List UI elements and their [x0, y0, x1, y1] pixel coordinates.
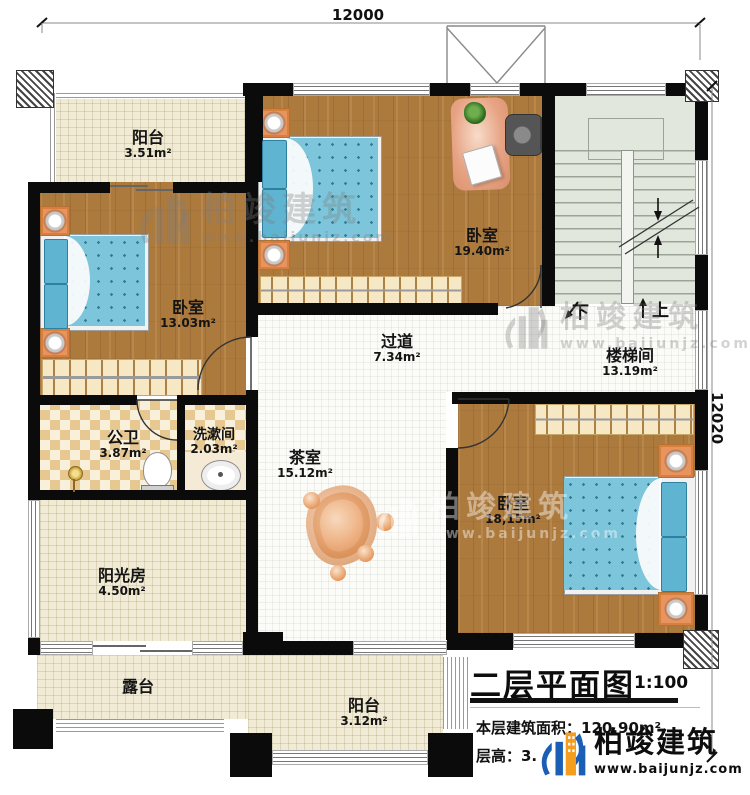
brand-website: www.baijunjz.com [594, 762, 743, 777]
hatched-column [685, 70, 719, 102]
room-label-bedroom-left: 卧室 13.03m² [143, 300, 233, 329]
window [192, 641, 243, 655]
plant [464, 102, 486, 124]
brand-logo [534, 724, 590, 786]
window [586, 83, 666, 96]
stair-up-label: 上 [652, 296, 669, 321]
dimension-top: 12000 [318, 6, 398, 24]
closet-bedroom-left [42, 359, 202, 396]
balcony-railing [52, 93, 245, 99]
window [695, 160, 708, 255]
rock-small [303, 492, 320, 509]
rock-small [357, 545, 374, 562]
room-label-balcony-bottom: 阳台 3.12m² [319, 698, 409, 727]
floor-height-text: 层高：3. [476, 745, 537, 766]
window [28, 500, 40, 638]
window [40, 641, 93, 655]
nightstand [258, 240, 290, 270]
wall-column [243, 632, 283, 655]
office-chair [505, 114, 543, 156]
plan-scale: 1:100 [634, 673, 688, 693]
title-underline [470, 698, 678, 703]
window [272, 750, 428, 765]
wall-column [428, 733, 473, 777]
bed-pillow [661, 482, 687, 537]
wall-segment [28, 182, 40, 498]
wall-segment [452, 392, 708, 404]
stair-down-label: 下 [572, 298, 589, 323]
hatched-column [683, 630, 719, 669]
wall-segment [243, 83, 293, 96]
window [293, 83, 430, 96]
wall-segment [177, 395, 248, 405]
wall-segment [246, 498, 258, 634]
room-label-tearoom: 茶室 15.12m² [260, 450, 350, 479]
wall-segment [28, 182, 110, 193]
window [695, 470, 708, 595]
bed-pillow [44, 284, 68, 329]
wall-segment [173, 182, 248, 193]
bed-pillow [44, 239, 68, 284]
room-label-bedroom-br: 卧室 18,15m² [468, 496, 558, 525]
wall-segment [520, 83, 586, 96]
title-divider [470, 707, 700, 708]
wall-segment [430, 83, 470, 96]
balcony-railing [443, 657, 469, 729]
wall-segment [28, 638, 40, 655]
sink-faucet [218, 472, 223, 477]
wall-column [13, 709, 53, 749]
wall-segment [542, 96, 555, 306]
wall-column [230, 733, 272, 777]
bed-pillow [661, 537, 687, 592]
nightstand [40, 328, 70, 358]
stair-handrail [621, 150, 634, 304]
wall-segment [695, 96, 708, 160]
room-label-bedroom-top: 卧室 19.40m² [437, 228, 527, 257]
room-label-balcony-top: 阳台 3.51m² [103, 130, 193, 159]
wall-segment [246, 182, 258, 337]
room-label-corridor: 过道 7.34m² [352, 334, 442, 363]
floor-plan-canvas: 12000 12020 阳台 3.51m² 卧室 19.40m² 楼梯间 13.… [0, 0, 750, 795]
dimension-right: 12020 [708, 392, 726, 442]
wall-segment [28, 395, 137, 405]
wall-segment [446, 448, 458, 640]
room-label-washroom: 洗漱间 2.03m² [176, 428, 252, 455]
room-label-terrace: 露台 [108, 679, 168, 696]
room-label-stairwell: 楼梯间 13.19m² [584, 348, 676, 377]
wall-segment [245, 96, 263, 182]
hatched-column [16, 70, 54, 108]
closet-bedroom-br [535, 404, 694, 435]
room-label-sunroom: 阳光房 4.50m² [77, 568, 167, 597]
wall-segment [447, 633, 513, 650]
window [513, 633, 635, 648]
window [470, 83, 520, 96]
bed-pillow [262, 189, 287, 238]
brand-logo-icon [534, 724, 590, 782]
room-label-bathroom: 公卫 3.87m² [80, 430, 166, 459]
nightstand [40, 206, 70, 236]
window [353, 641, 447, 655]
nightstand [658, 444, 694, 478]
rock-small [376, 513, 394, 531]
floor-drain [68, 466, 83, 481]
nightstand [658, 592, 694, 626]
bed-pillow [262, 140, 287, 189]
wall-segment [28, 490, 258, 500]
closet-bedroom-top [260, 276, 462, 305]
wall-segment [258, 303, 498, 315]
brand-name: 柏竣建筑 [594, 728, 718, 757]
terrace-railing [56, 719, 224, 732]
wall-segment [695, 255, 708, 310]
window [695, 310, 708, 390]
rock-small [330, 565, 346, 581]
wall-segment [283, 641, 353, 655]
